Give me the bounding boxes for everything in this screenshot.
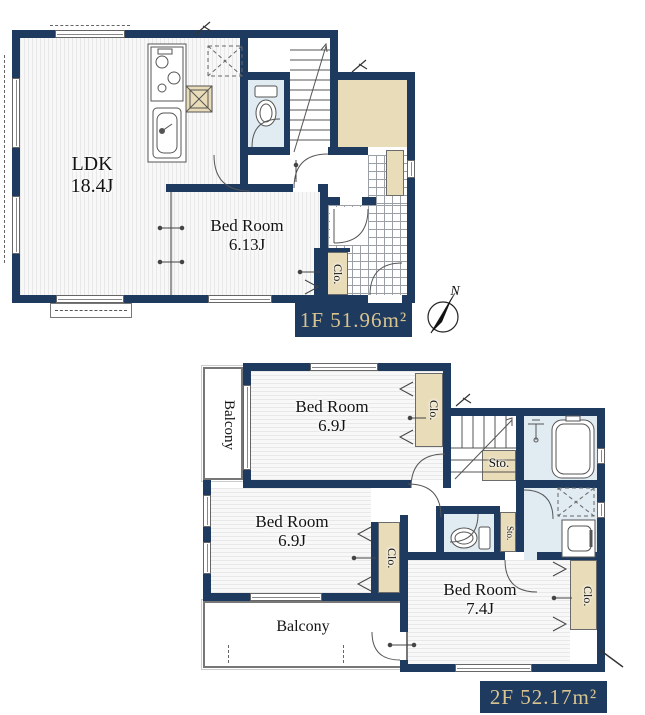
wall: [516, 480, 605, 488]
room-size: 7.4J: [440, 599, 520, 618]
wall: [314, 248, 350, 252]
wall: [240, 72, 290, 80]
label-closet-north: Clo.: [418, 390, 440, 430]
area-label-2f: 2F 52.17m²: [480, 681, 607, 713]
window: [56, 295, 124, 303]
wall: [12, 30, 20, 303]
balcony-divider-mark: [343, 645, 344, 663]
window: [12, 78, 20, 148]
room-entrance-storage: [338, 80, 407, 147]
room-label-ldk: LDK 18.4J: [40, 153, 144, 198]
label-balcony-west: Balcony: [209, 394, 237, 456]
entrance-hall-floor: [330, 207, 368, 245]
wall: [328, 147, 368, 155]
label-closet-south: Clo.: [572, 578, 594, 614]
boundary-line: [4, 55, 5, 263]
wall: [328, 197, 340, 205]
balcony-door-window: [243, 385, 251, 470]
wall: [284, 80, 290, 155]
vent-window: [597, 448, 605, 464]
wall: [400, 480, 408, 486]
room-size: 6.9J: [292, 416, 372, 435]
wall: [330, 72, 415, 80]
wall: [243, 480, 411, 488]
entrance-bench: [386, 150, 404, 196]
room-name: Bed Room: [440, 580, 520, 599]
window: [455, 664, 532, 672]
wall: [371, 522, 378, 593]
label-storage-small: Sto.: [501, 520, 515, 546]
vent-window: [407, 160, 415, 178]
wall: [400, 660, 408, 672]
window: [310, 363, 378, 371]
wall: [330, 80, 338, 147]
floor-plan: LDK 18.4J Bed Room 6.13J Clo. 1F 51.96m²…: [0, 0, 645, 715]
wall: [436, 506, 444, 552]
wall: [516, 488, 524, 552]
label-closet-1f: Clo.: [324, 256, 344, 292]
label-balcony-south: Balcony: [258, 618, 348, 636]
window: [12, 196, 20, 254]
wall: [407, 72, 415, 303]
wall: [240, 38, 248, 162]
eave-line: [50, 25, 130, 26]
room-name: Bed Room: [252, 512, 332, 531]
label-closet-west: Clo.: [380, 540, 398, 576]
room-label-bedroom-north: Bed Room 6.9J: [292, 397, 372, 435]
area-label-1f: 1F 51.96m²: [295, 303, 412, 337]
room-name: Bed Room: [210, 216, 284, 235]
vent-window: [597, 502, 605, 518]
wall: [516, 416, 524, 483]
entrance-door-opening: [368, 295, 402, 303]
balcony-divider-mark: [228, 645, 229, 663]
wall: [166, 184, 293, 192]
room-label-bedroom-west: Bed Room 6.9J: [252, 512, 332, 550]
room-name: LDK: [40, 153, 144, 175]
wall: [443, 408, 605, 416]
wall: [408, 552, 505, 560]
room-bath: [524, 416, 597, 480]
stairs-1f: [290, 44, 330, 152]
sliding-partition: [170, 192, 172, 295]
room-washroom: [524, 488, 597, 560]
room-size: 18.4J: [40, 175, 144, 197]
window: [203, 542, 211, 574]
window: [55, 30, 125, 38]
room-size: 6.13J: [210, 235, 284, 254]
terrace: [50, 303, 132, 318]
wall: [203, 593, 250, 601]
window: [203, 495, 211, 527]
wall: [400, 515, 408, 632]
room-toilet-2f: [440, 514, 494, 552]
wall: [443, 363, 451, 488]
wall: [537, 552, 605, 560]
room-label-bedroom-1f: Bed Room 6.13J: [210, 216, 284, 254]
wall: [494, 506, 500, 552]
balcony-door-window: [250, 593, 322, 601]
room-size: 6.9J: [252, 531, 332, 550]
wall: [440, 506, 497, 514]
wall: [362, 197, 376, 205]
label-storage-hall: Sto.: [482, 456, 516, 471]
compass-north-label: N: [446, 284, 464, 300]
wall: [322, 593, 408, 601]
room-label-bedroom-south: Bed Room 7.4J: [440, 580, 520, 618]
room-name: Bed Room: [292, 397, 372, 416]
wall: [314, 248, 320, 297]
room-toilet-1f: [248, 80, 284, 147]
window: [208, 295, 272, 303]
